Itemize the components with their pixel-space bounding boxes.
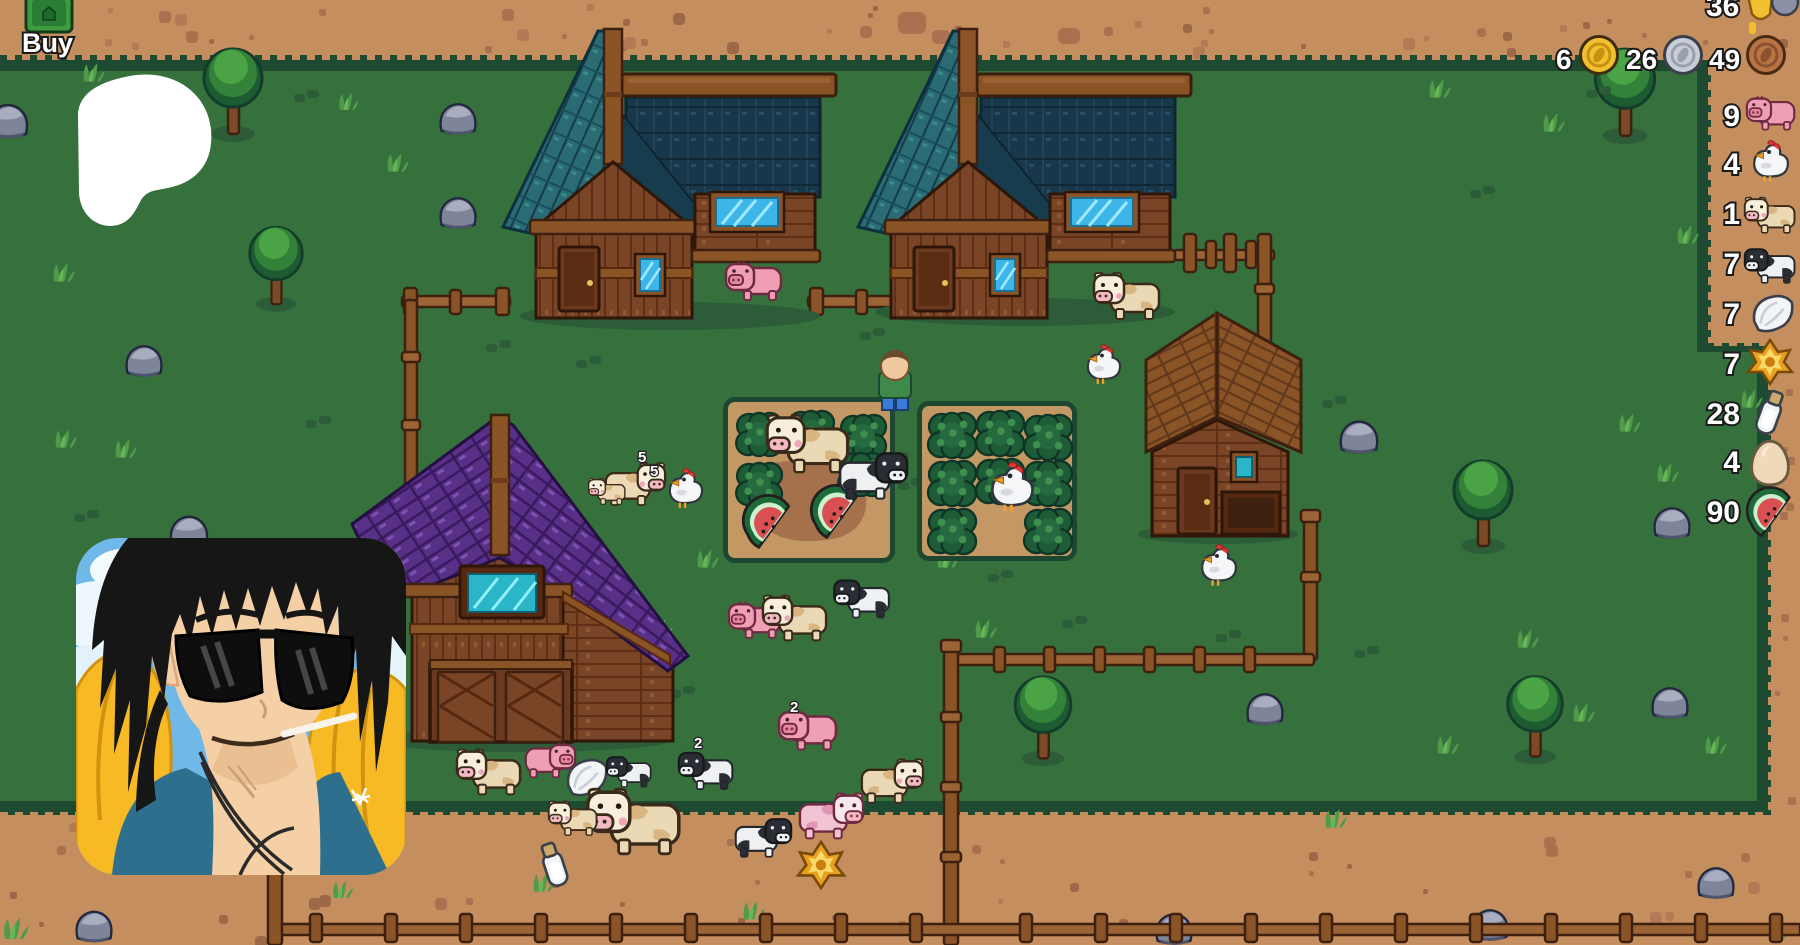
- svg-text:7: 7: [1723, 248, 1740, 281]
- svg-text:7: 7: [1723, 298, 1740, 331]
- svg-text:49: 49: [1709, 44, 1740, 75]
- svg-text:9: 9: [1723, 100, 1740, 133]
- svg-text:5: 5: [650, 463, 658, 480]
- svg-text:4: 4: [1723, 446, 1740, 479]
- svg-text:36: 36: [1706, 0, 1739, 23]
- svg-text:5: 5: [638, 449, 646, 466]
- svg-text:90: 90: [1707, 496, 1740, 529]
- svg-text:Buy: Buy: [22, 28, 73, 58]
- svg-text:28: 28: [1707, 398, 1740, 431]
- svg-text:26: 26: [1626, 44, 1657, 75]
- svg-text:2: 2: [790, 699, 798, 716]
- svg-text:2: 2: [694, 735, 702, 752]
- svg-text:4: 4: [1723, 148, 1740, 181]
- svg-text:1: 1: [1723, 198, 1740, 231]
- svg-text:7: 7: [1723, 348, 1740, 381]
- svg-text:6: 6: [1556, 44, 1572, 75]
